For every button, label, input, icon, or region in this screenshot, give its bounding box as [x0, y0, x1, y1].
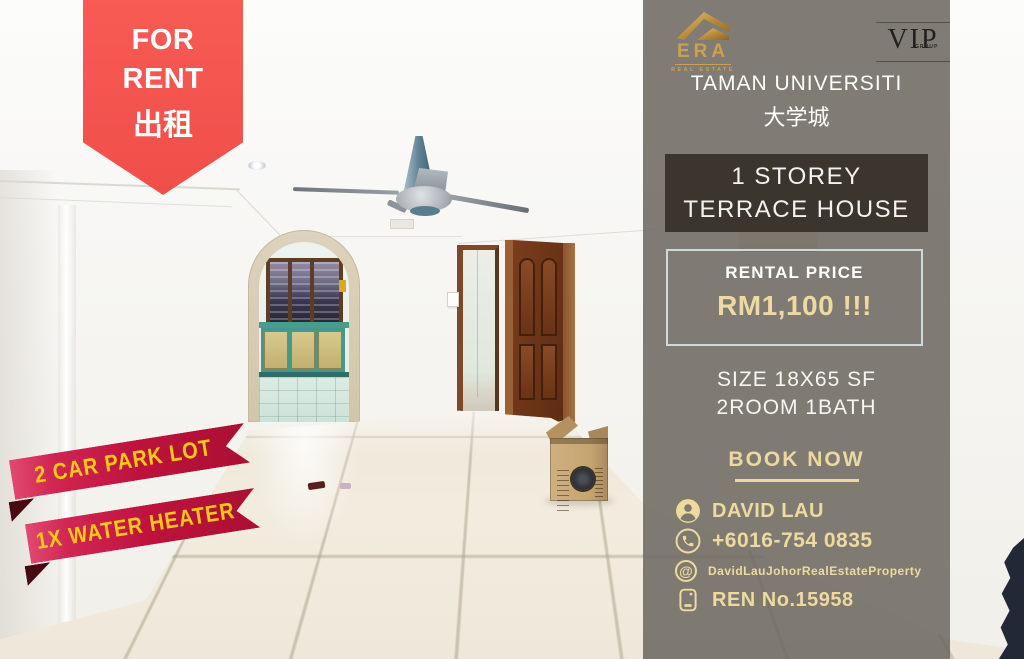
vip-subtitle: GROUP: [915, 32, 938, 62]
location-chinese: 大学城: [643, 100, 950, 132]
left-wall-shade: [0, 170, 58, 659]
rental-flyer: FOR RENT 出租 2 CAR PARK LOT 1X WATER HEAT…: [0, 0, 1024, 659]
cabinet-door: [291, 331, 315, 369]
ceiling-hatch: [390, 219, 414, 229]
info-panel: ERA REAL ESTATE VIP GROUP TAMAN UNIVERSI…: [643, 0, 950, 659]
kitchen-view: [259, 242, 349, 422]
fan-cap: [410, 206, 440, 216]
property-type-box: 1 STOREY TERRACE HOUSE: [665, 154, 928, 232]
floor-object-pink: [340, 483, 351, 489]
door-jamb: [563, 243, 575, 423]
agent-phone: +6016-754 0835: [712, 529, 873, 553]
kitchen-cabinets: [261, 328, 345, 372]
recessed-light: [248, 161, 266, 170]
box-fan: [572, 468, 594, 490]
contact-name-row: DAVID LAU: [675, 497, 824, 525]
size-line1: SIZE 18X65 SF: [643, 366, 950, 394]
kitchen-window: [266, 258, 343, 326]
box-body: [550, 438, 608, 501]
size-line2: 2ROOM 1BATH: [643, 394, 950, 422]
vip-rule: [876, 22, 950, 23]
phone-icon: [675, 528, 701, 554]
wall-socket: [447, 292, 459, 307]
banner-line-chinese: 出租: [83, 100, 243, 144]
era-name: ERA: [675, 41, 731, 65]
kitchen-switch: [339, 280, 346, 292]
price-value: RM1,100 !!!: [668, 290, 921, 322]
price-label: RENTAL PRICE: [668, 263, 921, 283]
agent-ren: REN No.15958: [712, 589, 854, 612]
person-icon: [675, 498, 701, 524]
agent-name: DAVID LAU: [712, 500, 824, 523]
door-panel: [519, 344, 535, 400]
ren-card-icon: [675, 587, 701, 613]
contact-ren-row: REN No.15958: [675, 586, 854, 614]
box-print: [557, 470, 569, 512]
cabinet-door: [318, 331, 342, 369]
size-details: SIZE 18X65 SF 2ROOM 1BATH: [643, 366, 950, 422]
door-panel: [519, 258, 535, 336]
at-icon: @: [675, 560, 697, 582]
box-barcode: [595, 468, 603, 498]
book-now-underline: [735, 479, 859, 482]
door-jamb: [505, 240, 513, 422]
open-doorway: [457, 245, 499, 411]
banner-line-rent: RENT: [83, 63, 243, 96]
agent-social: DavidLauJohorRealEstateProperty: [708, 564, 922, 578]
archway: [248, 230, 360, 422]
era-logo: ERA REAL ESTATE: [657, 8, 749, 73]
price-box: RENTAL PRICE RM1,100 !!!: [666, 249, 923, 346]
door-panel: [541, 258, 557, 336]
contact-social-row: @ DavidLauJohorRealEstateProperty: [675, 557, 922, 585]
cabinet-door: [264, 331, 288, 369]
wall-corner-highlight: [58, 205, 76, 659]
vip-rule: [876, 61, 950, 62]
contact-phone-row: +6016-754 0835: [675, 527, 873, 555]
banner-line-for: FOR: [83, 24, 243, 57]
wooden-door: [513, 240, 563, 436]
book-now-label: BOOK NOW: [643, 448, 950, 472]
location-name: TAMAN UNIVERSITI: [643, 72, 950, 96]
vip-logo: VIP GROUP: [876, 20, 950, 64]
property-type-line1: 1 STOREY: [665, 160, 928, 193]
location-title: TAMAN UNIVERSITI 大学城: [643, 72, 950, 132]
era-roof-icon: [675, 8, 731, 40]
property-type-line2: TERRACE HOUSE: [665, 193, 928, 226]
door-panel: [541, 344, 557, 400]
cardboard-box: [548, 416, 610, 504]
kitchen-floor: [259, 377, 349, 422]
